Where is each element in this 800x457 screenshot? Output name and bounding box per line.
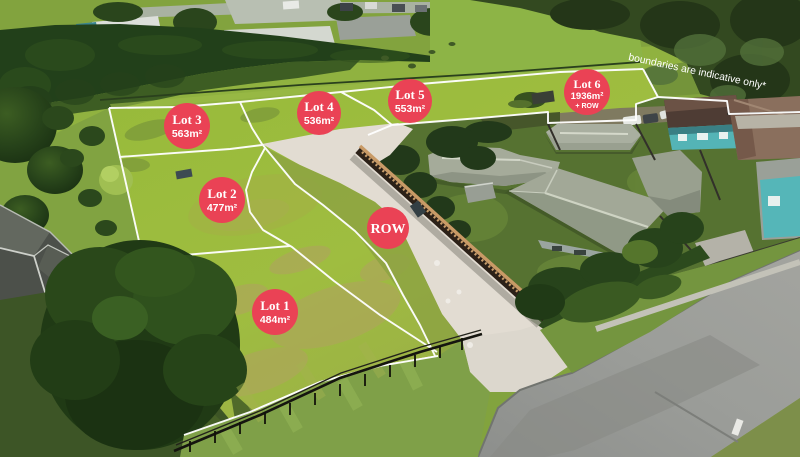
svg-text:+ ROW: + ROW xyxy=(575,103,599,110)
svg-text:563m²: 563m² xyxy=(172,128,203,140)
svg-text:Lot 2: Lot 2 xyxy=(207,186,236,201)
svg-text:Lot 5: Lot 5 xyxy=(395,87,425,102)
svg-text:Lot 6: Lot 6 xyxy=(574,77,601,91)
svg-text:Lot 1: Lot 1 xyxy=(260,298,289,313)
svg-text:ROW: ROW xyxy=(371,222,406,237)
svg-text:477m²: 477m² xyxy=(207,202,238,214)
svg-text:553m²: 553m² xyxy=(395,103,426,115)
svg-text:Lot 4: Lot 4 xyxy=(304,99,334,114)
svg-text:1936m²: 1936m² xyxy=(571,91,604,102)
svg-text:Lot 3: Lot 3 xyxy=(172,112,202,127)
svg-text:484m²: 484m² xyxy=(260,314,291,326)
svg-text:536m²: 536m² xyxy=(304,115,335,127)
